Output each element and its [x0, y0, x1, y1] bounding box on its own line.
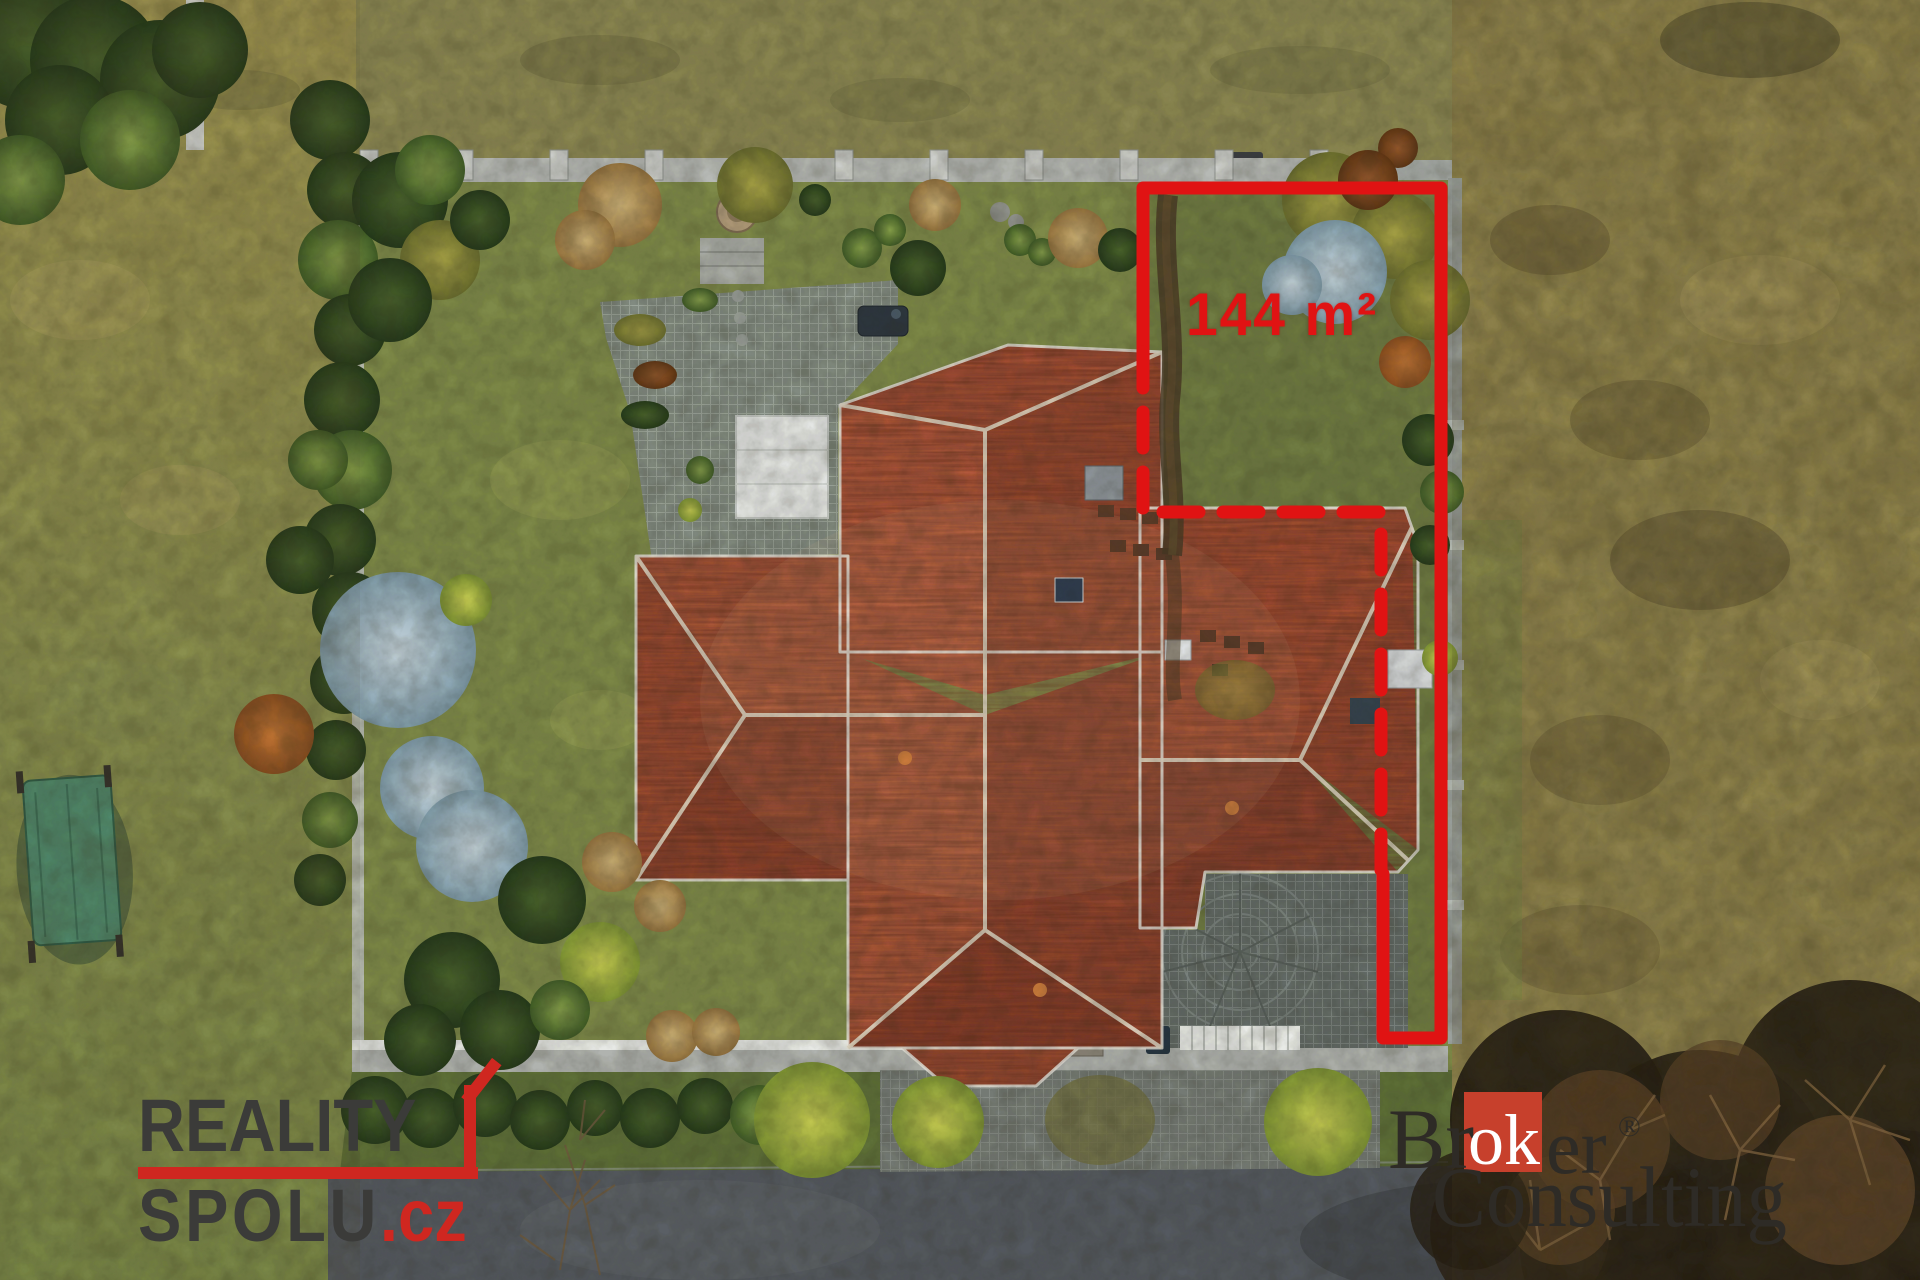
broker-word-consulting: Consulting: [1432, 1154, 1787, 1240]
area-label: 144 m²: [1186, 280, 1378, 349]
reality-spolu-word: SPOLU: [138, 1174, 380, 1257]
aerial-photo: 144 m² REALITY SPOLU.cz Br ok er ® Consu…: [0, 0, 1920, 1280]
reality-spolu-line2: SPOLU.cz: [138, 1179, 467, 1253]
reality-spolu-tld: .cz: [380, 1174, 467, 1257]
reality-spolu-line1: REALITY: [138, 1089, 417, 1163]
registered-mark-icon: ®: [1618, 1112, 1641, 1142]
reality-spolu-watermark: REALITY SPOLU.cz: [138, 1095, 518, 1265]
broker-consulting-watermark: Br ok er ® Consulting: [1388, 1086, 1828, 1256]
